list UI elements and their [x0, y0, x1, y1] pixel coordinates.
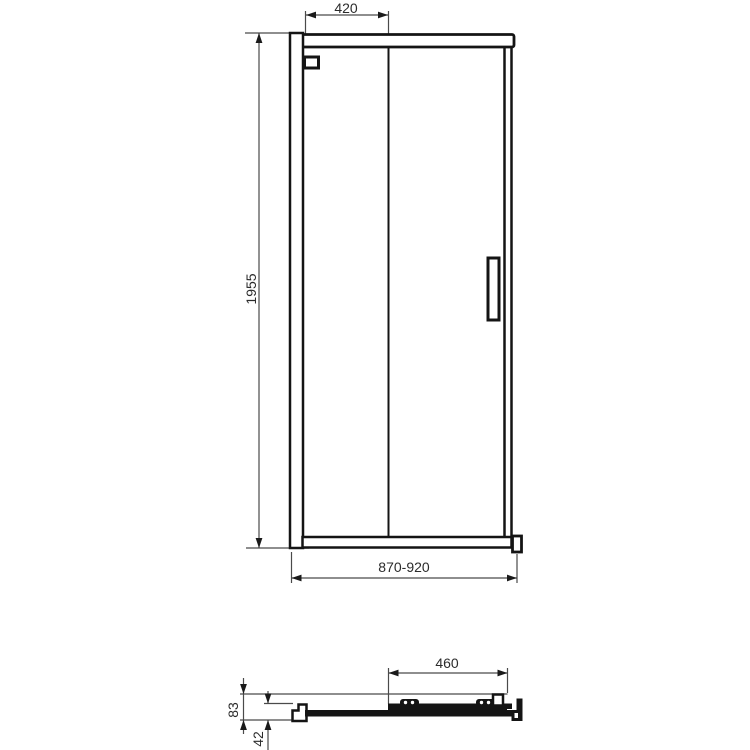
roller-left	[400, 699, 419, 706]
roller-right-dot-1	[480, 701, 483, 704]
dim-label-profile-depth: 42	[250, 722, 266, 750]
bottom-rail	[303, 537, 512, 548]
dim-460-lines	[389, 668, 508, 704]
roller-bracket	[493, 695, 503, 706]
dim-label-total-depth: 83	[225, 693, 241, 727]
front-view	[245, 11, 522, 583]
drawing-linework	[0, 0, 750, 750]
roller-right-dot-2	[487, 701, 490, 704]
dim-label-height: 1955	[243, 272, 259, 306]
roller-left-dot-2	[411, 701, 414, 704]
fixed-panel-bar	[305, 710, 521, 717]
dim-label-top-width: 420	[329, 0, 363, 16]
dim-label-panel-width: 460	[430, 655, 464, 671]
top-rail	[291, 35, 514, 48]
left-end-profile	[293, 705, 307, 722]
track-nub	[502, 704, 512, 710]
bottom-right-tab	[513, 536, 522, 552]
wall-bracket	[305, 57, 319, 68]
door-handle	[488, 258, 499, 320]
roller-left-dot-1	[404, 701, 407, 704]
left-wall-profile	[290, 33, 303, 548]
dim-label-bottom-width: 870-920	[366, 559, 442, 575]
right-end-profile	[512, 699, 523, 722]
section-view	[240, 668, 523, 750]
technical-drawing-canvas: 420 1955 870-920 460 83 42	[0, 0, 750, 750]
